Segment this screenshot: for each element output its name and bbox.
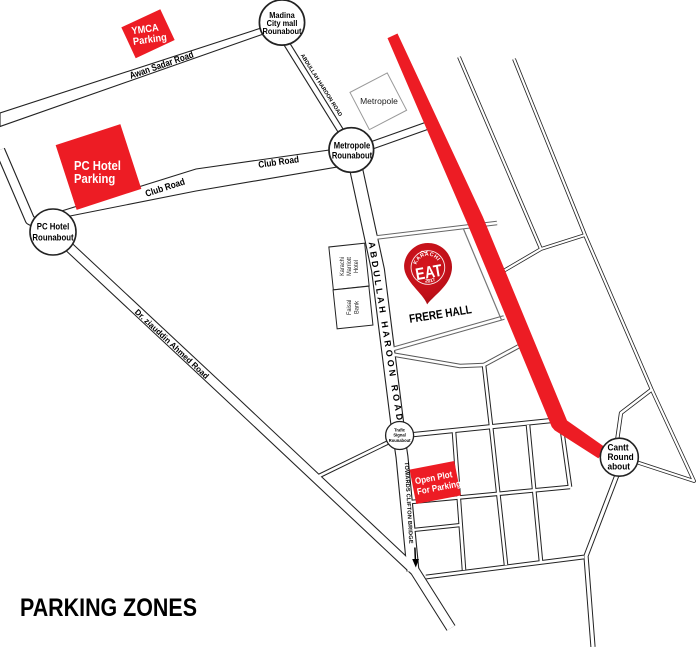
- svg-text:Rounabout: Rounabout: [263, 26, 302, 36]
- svg-text:Rounabout: Rounabout: [389, 438, 411, 443]
- svg-text:PARKING ZONES: PARKING ZONES: [20, 594, 197, 622]
- svg-text:Hotel: Hotel: [354, 260, 360, 273]
- svg-text:Rounabout: Rounabout: [332, 150, 373, 161]
- svg-text:Faisal: Faisal: [346, 300, 353, 315]
- svg-text:Marriott: Marriott: [347, 257, 353, 276]
- svg-text:Rounabout: Rounabout: [32, 232, 73, 243]
- svg-text:about: about: [608, 461, 631, 472]
- svg-text:Bank: Bank: [353, 300, 360, 314]
- svg-text:PC Hotel: PC Hotel: [37, 221, 70, 232]
- svg-text:Parking: Parking: [74, 171, 115, 186]
- svg-text:Karachi: Karachi: [340, 257, 346, 276]
- svg-text:Metropole: Metropole: [360, 96, 398, 106]
